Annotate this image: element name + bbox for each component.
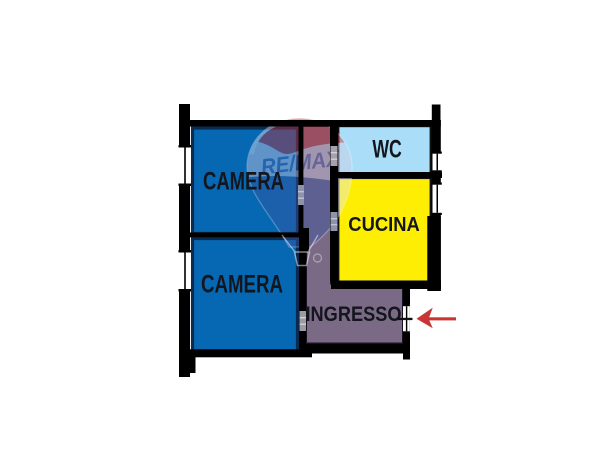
svg-text:INGRESSO: INGRESSO <box>306 303 402 326</box>
svg-text:CUCINA: CUCINA <box>348 213 420 236</box>
svg-text:WC: WC <box>372 135 402 163</box>
svg-text:CAMERA: CAMERA <box>203 168 284 195</box>
svg-text:CAMERA: CAMERA <box>201 270 283 297</box>
